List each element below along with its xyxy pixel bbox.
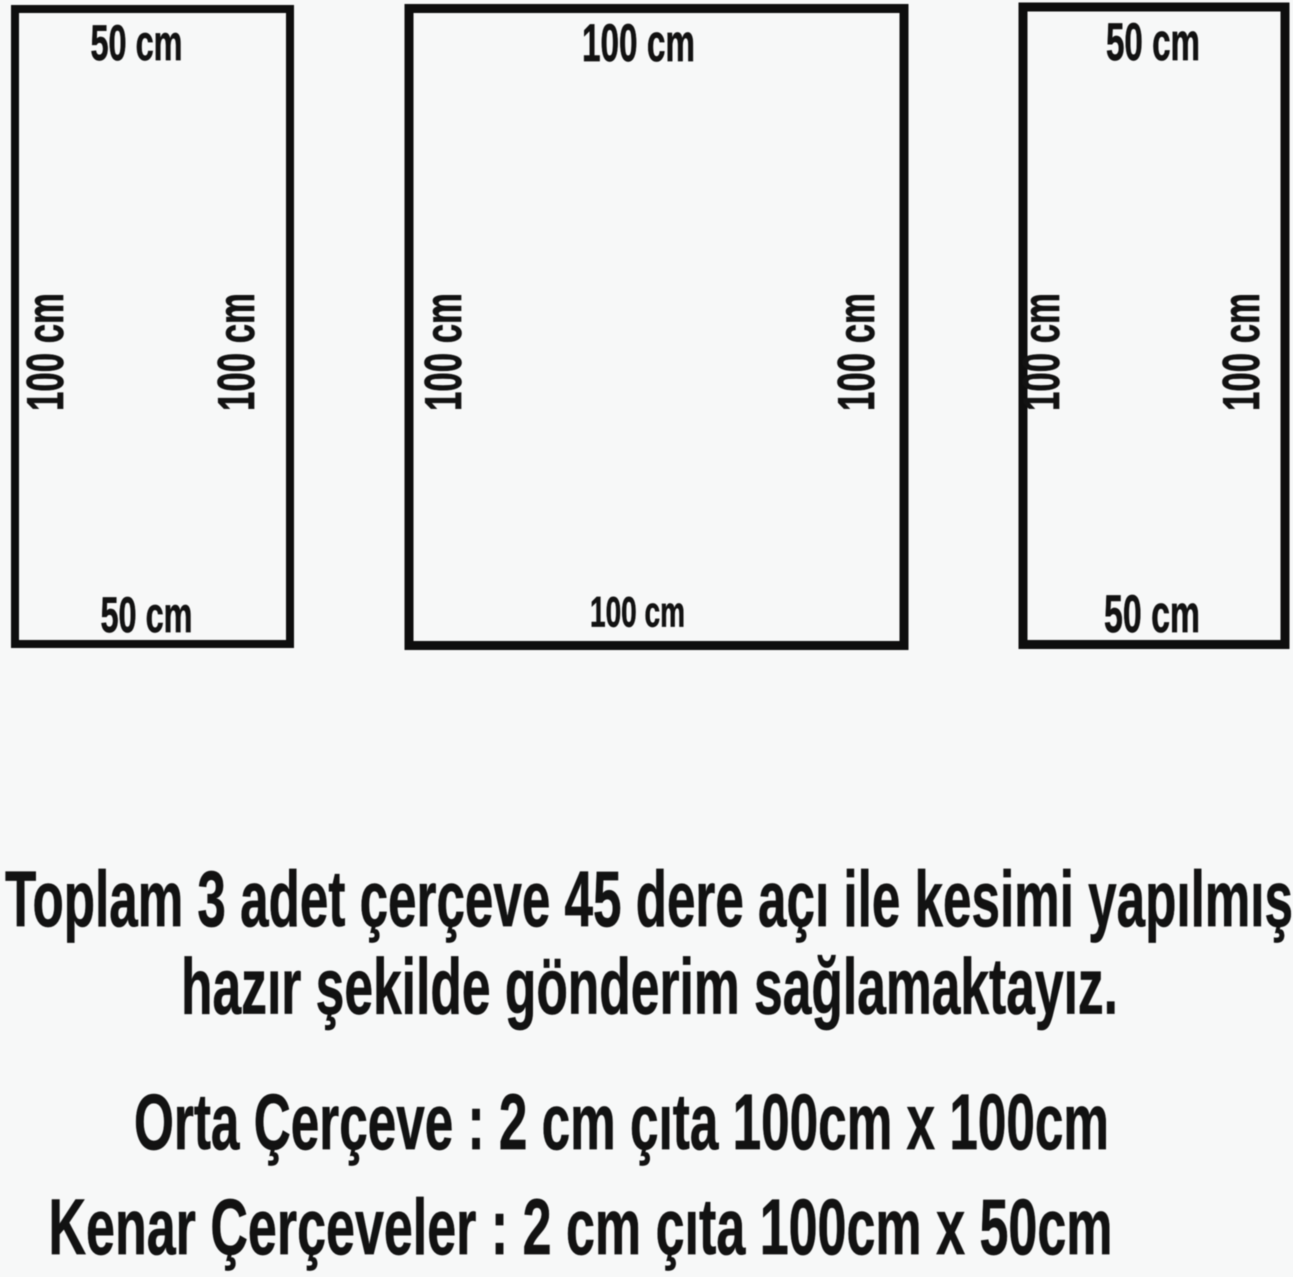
svg-text:Orta Çerçeve : 2 cm çıta 100cm: Orta Çerçeve : 2 cm çıta 100cm x 100cm: [134, 1077, 1109, 1166]
svg-text:100 cm: 100 cm: [582, 14, 695, 73]
svg-text:100 cm: 100 cm: [415, 293, 473, 411]
svg-text:100 cm: 100 cm: [17, 293, 75, 411]
svg-text:100 cm: 100 cm: [208, 293, 266, 411]
svg-text:Kenar Çerçeveler : 2 cm çıta 1: Kenar Çerçeveler : 2 cm çıta 100cm x 50c…: [49, 1182, 1113, 1271]
svg-text:100 cm: 100 cm: [590, 589, 685, 637]
svg-text:50 cm: 50 cm: [101, 587, 193, 643]
svg-text:50 cm: 50 cm: [1104, 585, 1200, 644]
svg-text:100 cm: 100 cm: [1013, 293, 1071, 411]
svg-text:Toplam 3 adet çerçeve 45 dere: Toplam 3 adet çerçeve 45 dere açı ile ke…: [5, 854, 1293, 943]
svg-text:50 cm: 50 cm: [1106, 13, 1200, 72]
svg-text:50 cm: 50 cm: [91, 15, 183, 71]
svg-text:100 cm: 100 cm: [1213, 293, 1271, 411]
svg-text:100 cm: 100 cm: [828, 293, 886, 411]
svg-text:hazır şekilde gönderim sağlama: hazır şekilde gönderim sağlamaktayız.: [181, 942, 1118, 1031]
